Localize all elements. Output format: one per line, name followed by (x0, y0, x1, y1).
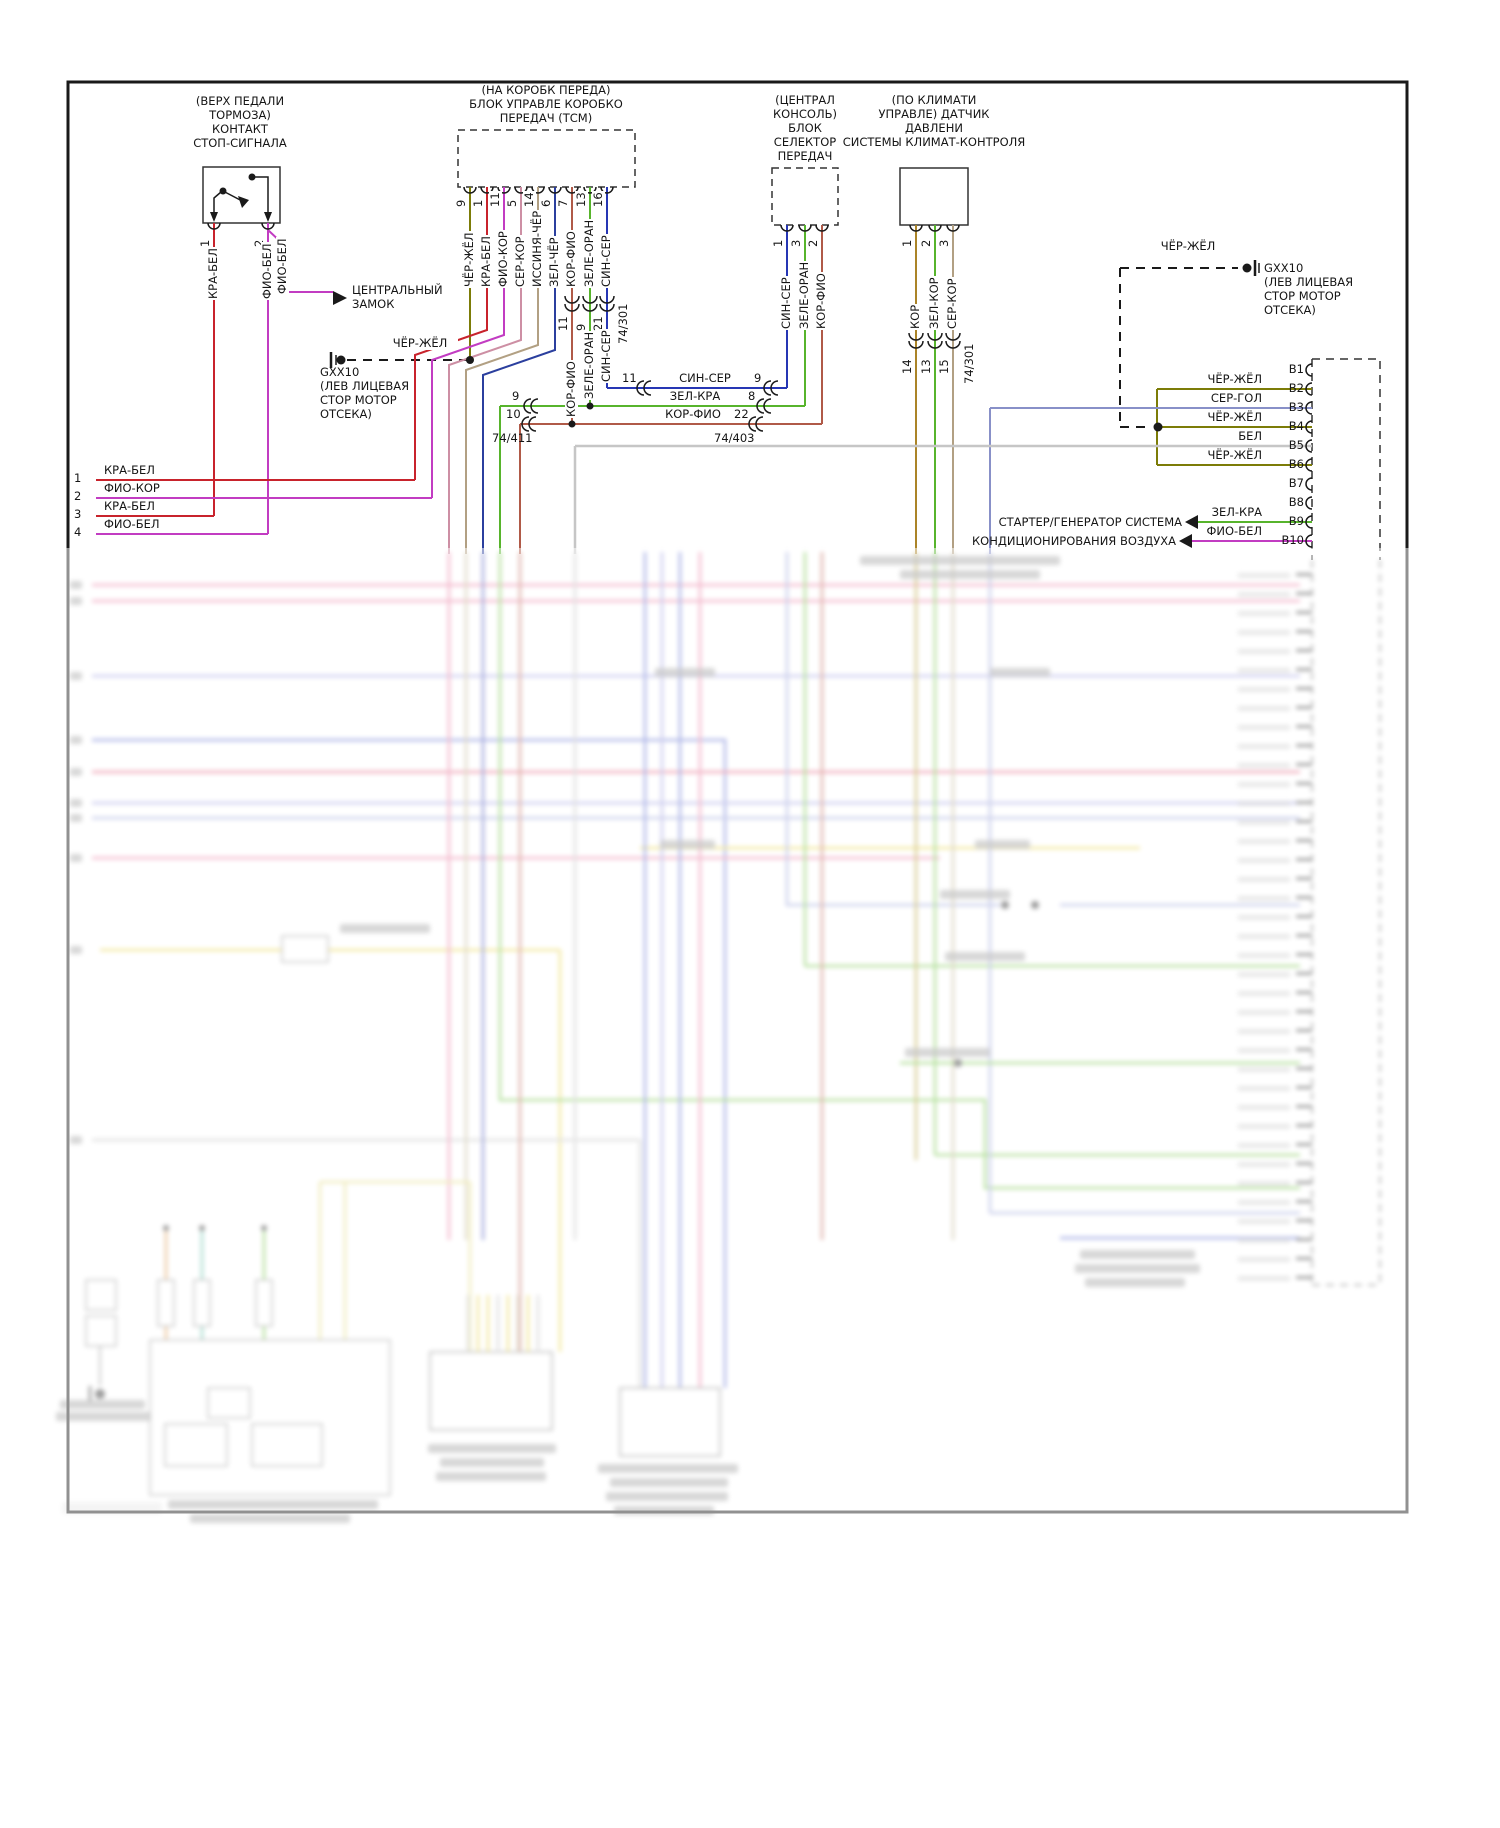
ground-location: СТОР МОТОР (1264, 290, 1341, 303)
b-pin-id: В4 (1268, 420, 1304, 433)
connector-number: 13 (920, 358, 933, 375)
blur-overlay-sheet (0, 548, 1500, 1828)
connector-number: 22 (734, 408, 749, 421)
console-pin-number: 2 (807, 239, 820, 248)
climate-box (900, 168, 968, 225)
b-connector-box (1312, 359, 1380, 560)
wire-label: ЗЕЛ-КРА (650, 390, 740, 403)
tcm-pin-number: 11 (489, 191, 502, 208)
brake-label-line: ТОРМОЗА) (150, 109, 330, 122)
tcm-pin-number: 13 (575, 191, 588, 208)
climate-label-line: УПРАВЛЕ) ДАТЧИК (824, 108, 1044, 121)
row-number: 2 (74, 490, 81, 503)
wire-label: КРА-БЕЛ (104, 500, 155, 513)
tcm-pin-number: 7 (557, 199, 570, 208)
climate-label-line: (ПО КЛИМАТИ (824, 94, 1044, 107)
connector-number: 8 (748, 390, 755, 403)
b-pin-id: В8 (1268, 496, 1304, 509)
wire-label: ЗЕЛЕ-ОРАН (583, 219, 596, 288)
connector-number: 10 (506, 408, 521, 421)
wire-label: ЗЕЛ-КОР (928, 276, 941, 330)
starter-arrow (1185, 515, 1198, 529)
ground-location: (ЛЕВ ЛИЦЕВАЯ (320, 380, 409, 393)
wire-label: ИССИНЯ-ЧЁР (531, 210, 544, 288)
harness-number: 74/411 (492, 432, 532, 445)
wire-label: СИН-СЕР (600, 234, 613, 288)
connector-number: 11 (622, 372, 637, 385)
wire-label: СИН-СЕР (780, 276, 793, 330)
wire-label: ФИО-БЕЛ (261, 242, 274, 300)
wire-label: КОР (909, 304, 922, 330)
wiring-diagram-page: (ВЕРХ ПЕДАЛИ ТОРМОЗА) КОНТАКТ СТОП-СИГНА… (0, 0, 1500, 1828)
ground-name: GXX10 (1264, 262, 1303, 275)
b-pin-id: В10 (1268, 534, 1304, 547)
b-pin-id: В6 (1268, 458, 1304, 471)
wire-label: КРА-БЕЛ (480, 235, 493, 288)
wire-label: ФИО-БЕЛ (1200, 525, 1262, 538)
wire-label: КРА-БЕЛ (104, 464, 155, 477)
central-lock-arrow (333, 291, 347, 305)
b-pin-id: В1 (1268, 363, 1304, 376)
system-label-starter: СТАРТЕР/ГЕНЕРАТОР СИСТЕМА (950, 516, 1182, 529)
ground-location: (ЛЕВ ЛИЦЕВАЯ (1264, 276, 1353, 289)
connector-number: 14 (901, 358, 914, 375)
tcm-pin-number: 5 (506, 199, 519, 208)
wire-label: КОР-ФИО (648, 408, 738, 421)
b-pin-id: В7 (1268, 477, 1304, 490)
tcm-label-line: БЛОК УПРАВЛЕ КОРОБКО (426, 98, 666, 111)
climate-pin-number: 1 (901, 239, 914, 248)
central-lock-label: ЗАМОК (352, 298, 394, 311)
console-pin-number: 1 (772, 239, 785, 248)
wire-label: ЧЁР-ЖЁЛ (1150, 373, 1262, 386)
tcm-label-line: (НА КОРОБК ПЕРЕДА) (426, 84, 666, 97)
b-pin-id: В2 (1268, 382, 1304, 395)
wire-label: СИН-СЕР (600, 329, 613, 383)
wire-label: ЗЕЛЕ-ОРАН (798, 261, 811, 330)
tcm-pin-number: 14 (523, 191, 536, 208)
ground-location: ОТСЕКА) (320, 408, 372, 421)
connector-number: 15 (938, 358, 951, 375)
wire-label: ЧЁР-ЖЁЛ (1150, 449, 1262, 462)
wire-label: ФИО-БЕЛ (276, 237, 289, 295)
climate-pin-number: 3 (938, 239, 951, 248)
wire-label: КОР-ФИО (565, 360, 578, 418)
tcm-pin-number: 9 (455, 199, 468, 208)
wire-label: ФИО-КОР (497, 230, 510, 288)
climate-label-line: ДАВЛЕНИ (824, 122, 1044, 135)
wire-label: ЧЁР-ЖЁЛ (463, 231, 476, 288)
climate-label-line: СИСТЕМЫ КЛИМАТ-КОНТРОЛЯ (824, 136, 1044, 149)
tcm-pin-number: 16 (592, 191, 605, 208)
wire-label: СЕР-КОР (514, 235, 527, 288)
ground-wire-label: ЧЁР-ЖЁЛ (1148, 240, 1228, 253)
system-label-ac: КОНДИЦИОНИРОВАНИЯ ВОЗДУХА (944, 535, 1176, 548)
ground-name: GXX10 (320, 366, 359, 379)
ground-symbol-right (1243, 264, 1252, 273)
harness-number: 74/301 (617, 303, 630, 345)
wire-label: ФИО-КОР (104, 482, 160, 495)
wire-label: СИН-СЕР (660, 372, 750, 385)
ground-symbol-left (337, 356, 346, 365)
wire-label: КРА-БЕЛ (207, 247, 220, 300)
console-box (772, 168, 838, 225)
wire-label: КОР-ФИО (815, 272, 828, 330)
ground-location: ОТСЕКА) (1264, 304, 1316, 317)
wire-label: ФИО-БЕЛ (104, 518, 160, 531)
wire-label: ЧЁР-ЖЁЛ (1150, 411, 1262, 424)
console-pin-number: 3 (790, 239, 803, 248)
brake-label-line: КОНТАКТ (150, 123, 330, 136)
console-label-line: ПЕРЕДАЧ (725, 150, 885, 163)
row-number: 1 (74, 472, 81, 485)
tcm-pin-number: 1 (472, 199, 485, 208)
row-number: 4 (74, 526, 81, 539)
brake-label-line: (ВЕРХ ПЕДАЛИ (150, 95, 330, 108)
climate-pin-number: 2 (920, 239, 933, 248)
b-pin-id: В5 (1268, 439, 1304, 452)
harness-number: 74/403 (714, 432, 754, 445)
row-number: 3 (74, 508, 81, 521)
wire-label: ЗЕЛ-ЧЁР (548, 236, 561, 288)
connector-number: 11 (557, 315, 570, 332)
wire-label: КОР-ФИО (565, 230, 578, 288)
tcm-label-line: ПЕРЕДАЧ (ТСМ) (426, 112, 666, 125)
wire-label: ЗЕЛ-КРА (1200, 506, 1262, 519)
wire-label: ЗЕЛЕ-ОРАН (583, 331, 596, 400)
ac-arrow (1179, 534, 1192, 548)
connector-number: 9 (754, 372, 761, 385)
tcm-box (458, 130, 635, 187)
b-pin-id: В3 (1268, 401, 1304, 414)
harness-number: 74/301 (963, 343, 976, 385)
wire-label: СЕР-КОР (946, 277, 959, 330)
b-pin-id: В9 (1268, 515, 1304, 528)
tcm-pin-number: 6 (540, 199, 553, 208)
central-lock-label: ЦЕНТРАЛЬНЫЙ (352, 284, 443, 297)
brake-label-line: СТОП-СИГНАЛА (150, 137, 330, 150)
wire-label: БЕЛ (1150, 430, 1262, 443)
ground-wire-label: ЧЁР-ЖЁЛ (382, 337, 458, 350)
ground-location: СТОР МОТОР (320, 394, 397, 407)
wire-label: СЕР-ГОЛ (1150, 392, 1262, 405)
connector-number: 9 (512, 390, 519, 403)
